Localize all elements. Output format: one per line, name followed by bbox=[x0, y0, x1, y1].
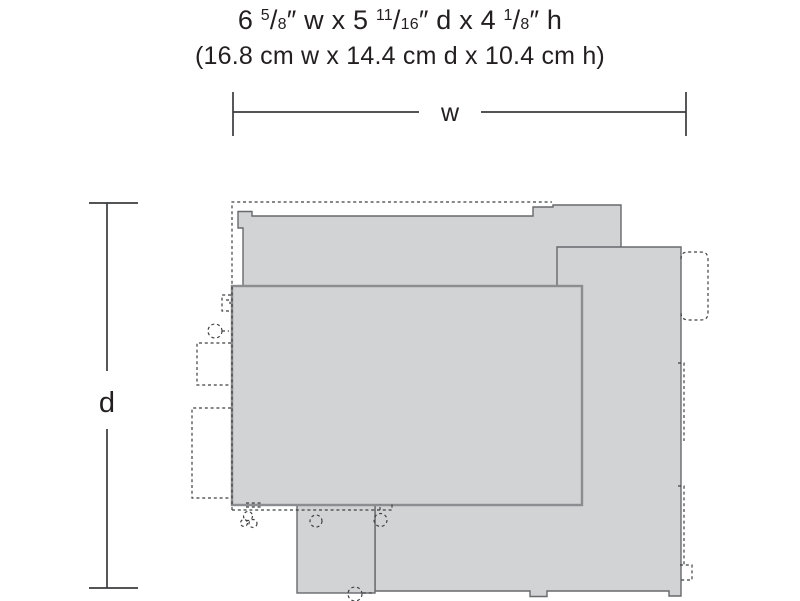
diagram-canvas: w d bbox=[0, 0, 800, 601]
dashed-cluster-circle-2 bbox=[241, 520, 248, 527]
dashed-cluster-circle-1 bbox=[244, 512, 253, 521]
dashed-left-box-tick bbox=[226, 300, 230, 304]
building-section-bottom-left bbox=[297, 504, 375, 593]
footprint-diagram: 6 5/8″ w x 5 11/16″ d x 4 1/8″ h (16.8 c… bbox=[0, 0, 800, 601]
dashed-right-box bbox=[680, 565, 692, 580]
dashed-left-bay-upper bbox=[197, 343, 231, 385]
dashed-left-bay-lower bbox=[192, 408, 231, 498]
dashed-side-capsule bbox=[681, 252, 708, 320]
main-base-rect bbox=[232, 286, 582, 505]
depth-label: d bbox=[99, 387, 115, 419]
dashed-left-circle bbox=[208, 324, 222, 338]
dashed-cluster-circle-3 bbox=[249, 520, 257, 528]
width-label: w bbox=[440, 99, 460, 127]
